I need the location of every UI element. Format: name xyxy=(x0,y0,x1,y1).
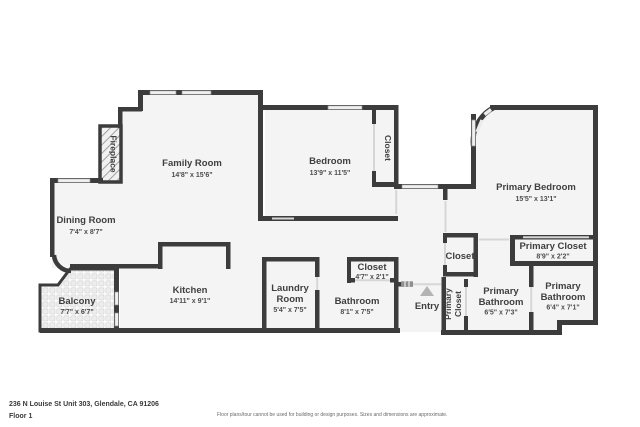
entry-door-symbol xyxy=(401,281,413,287)
label-hall-closet: Closet xyxy=(445,251,475,262)
exterior-notch-topleft xyxy=(116,88,138,107)
label-laundry-2: Room xyxy=(277,294,304,305)
dims-balcony: 7'7" x 6'7" xyxy=(60,309,93,316)
label-primary-closet-hall-2: Closet xyxy=(453,291,463,317)
dims-bathroom: 8'1" x 7'5" xyxy=(340,309,373,316)
dims-primary-bedroom: 15'5" x 13'1" xyxy=(515,196,556,203)
dims-family-room: 14'8" x 15'6" xyxy=(171,172,212,179)
floorplan-page: Family Room 14'8" x 15'6" Dining Room 7'… xyxy=(0,0,640,427)
floor-nook xyxy=(446,186,480,239)
label-primary-closet: Primary Closet xyxy=(519,241,587,252)
dims-bedroom: 13'9" x 11'5" xyxy=(310,170,351,177)
label-entry: Entry xyxy=(415,301,440,312)
dims-entry-closet: 4'7" x 2'1" xyxy=(355,274,388,281)
window-bedroom xyxy=(328,106,362,110)
dims-dining-room: 7'4" x 8'7" xyxy=(69,229,102,236)
label-entry-closet: Closet xyxy=(357,262,387,273)
balcony-door-1 xyxy=(115,292,119,305)
label-primary-bath-a-1: Primary xyxy=(483,286,519,297)
label-primary-bath-b-1: Primary xyxy=(545,281,581,292)
label-kitchen: Kitchen xyxy=(173,285,208,296)
label-dining-room: Dining Room xyxy=(56,215,115,226)
footer-floor-label: Floor 1 xyxy=(9,413,32,420)
window-family-1 xyxy=(150,91,176,95)
label-primary-bath-b-2: Bathroom xyxy=(541,292,586,303)
footer-address: 236 N Louise St Unit 303, Glendale, CA 9… xyxy=(9,401,159,408)
dims-primary-closet: 8'9" x 2'2" xyxy=(536,254,569,261)
label-bathroom: Bathroom xyxy=(335,296,380,307)
dims-kitchen: 14'11" x 9'1" xyxy=(170,298,211,305)
label-balcony: Balcony xyxy=(59,296,97,307)
floorplan-svg: Family Room 14'8" x 15'6" Dining Room 7'… xyxy=(0,0,640,427)
label-primary-bath-a-2: Bathroom xyxy=(479,297,524,308)
label-fireplace: Fireplace xyxy=(109,135,119,173)
window-dining xyxy=(58,179,90,183)
floor-primary-bedroom xyxy=(476,108,593,237)
dims-laundry: 5'4" x 7'5" xyxy=(273,307,306,314)
label-laundry-1: Laundry xyxy=(271,283,309,294)
label-primary-bedroom: Primary Bedroom xyxy=(496,182,576,193)
window-family-2 xyxy=(182,91,211,95)
label-bedroom-closet: Closet xyxy=(383,135,393,161)
dims-primary-bath-a: 6'5" x 7'3" xyxy=(484,310,517,317)
label-primary-closet-hall-1: Primary xyxy=(443,288,453,320)
window-hallway xyxy=(402,185,438,189)
dims-primary-bath-b: 6'4" x 7'1" xyxy=(546,305,579,312)
exterior-notch-bottomright xyxy=(561,325,598,334)
label-bedroom: Bedroom xyxy=(309,156,351,167)
footer: 236 N Louise St Unit 303, Glendale, CA 9… xyxy=(9,401,447,420)
footer-disclaimer: Floor plans/tour cannot be used for buil… xyxy=(217,412,447,418)
window-primary-left xyxy=(472,120,476,146)
label-family-room: Family Room xyxy=(162,158,222,169)
balcony-door-2 xyxy=(115,313,119,326)
